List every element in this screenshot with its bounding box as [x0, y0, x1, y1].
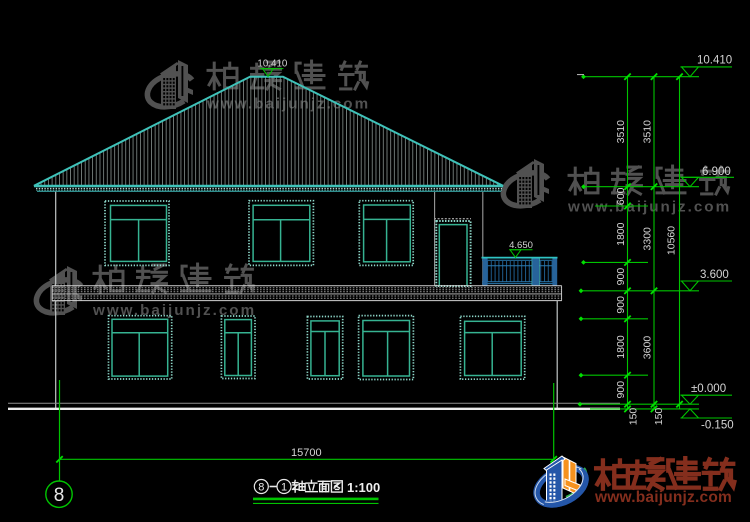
svg-text:www.baijunjz.com: www.baijunjz.com	[92, 302, 256, 319]
svg-text:900: 900	[615, 381, 627, 399]
svg-text:8: 8	[258, 482, 264, 494]
svg-text:10.410: 10.410	[257, 58, 288, 69]
svg-text:900: 900	[615, 268, 627, 286]
svg-text:10.410: 10.410	[697, 55, 732, 67]
svg-text:900: 900	[615, 296, 627, 314]
svg-text:4.650: 4.650	[509, 240, 533, 251]
svg-text:15700: 15700	[291, 447, 322, 459]
svg-text:150: 150	[653, 408, 665, 426]
svg-text:150: 150	[628, 408, 640, 426]
svg-text:1800: 1800	[615, 222, 627, 246]
svg-text:1800: 1800	[615, 335, 627, 359]
svg-text:600: 600	[615, 187, 627, 205]
svg-text:3600: 3600	[642, 336, 654, 360]
svg-text:3510: 3510	[642, 120, 654, 144]
svg-text:±0.000: ±0.000	[691, 383, 726, 395]
svg-text:3.600: 3.600	[700, 269, 729, 281]
svg-text:www.baijunjz.com: www.baijunjz.com	[567, 199, 731, 216]
svg-text:10560: 10560	[666, 226, 678, 255]
svg-text:-0.150: -0.150	[701, 420, 734, 432]
svg-text:1:100: 1:100	[347, 480, 380, 495]
svg-text:3510: 3510	[615, 120, 627, 144]
svg-text:6.900: 6.900	[702, 166, 731, 178]
svg-text:www.baijunjz.com: www.baijunjz.com	[594, 489, 732, 506]
svg-text:8: 8	[54, 485, 65, 506]
svg-text:1: 1	[281, 482, 287, 494]
svg-text:3300: 3300	[642, 227, 654, 251]
